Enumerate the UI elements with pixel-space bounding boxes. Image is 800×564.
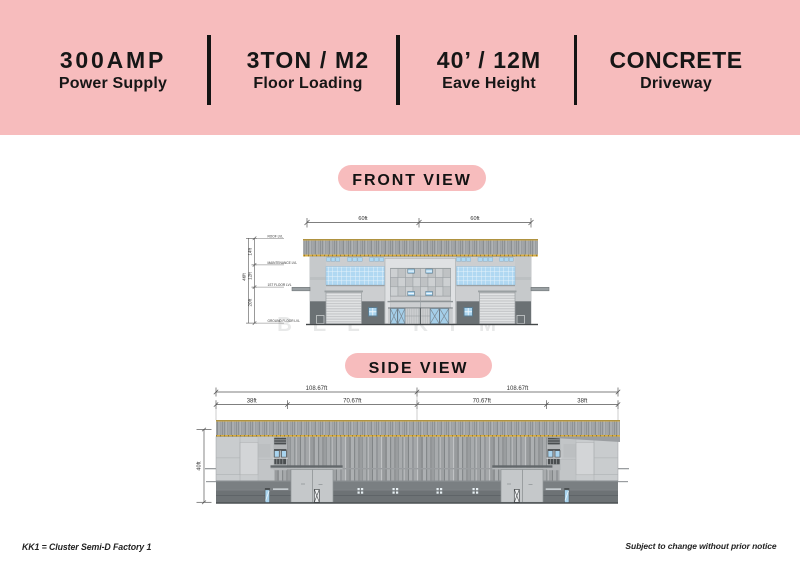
svg-text:46ft: 46ft xyxy=(241,272,246,280)
svg-text:38ft: 38ft xyxy=(247,398,257,404)
svg-text:60ft: 60ft xyxy=(358,216,368,222)
svg-text:108.67ft: 108.67ft xyxy=(306,386,328,392)
svg-text:60ft: 60ft xyxy=(470,216,480,222)
svg-text:B: B xyxy=(277,313,292,336)
svg-text:70.67ft: 70.67ft xyxy=(473,398,492,404)
svg-text:20ft: 20ft xyxy=(248,298,253,306)
svg-text:14ft: 14ft xyxy=(248,247,253,255)
svg-text:38ft: 38ft xyxy=(577,398,587,404)
svg-text:12ft: 12ft xyxy=(248,271,253,279)
svg-text:ROOF LVL: ROOF LVL xyxy=(268,234,284,238)
svg-text:40ft: 40ft xyxy=(197,461,203,471)
svg-text:GROUND FLOOR LVL: GROUND FLOOR LVL xyxy=(268,319,301,323)
svg-text:70.67ft: 70.67ft xyxy=(343,398,362,404)
svg-text:108.67ft: 108.67ft xyxy=(507,386,529,392)
svg-text:1ST FLOOR LVL: 1ST FLOOR LVL xyxy=(268,283,292,287)
svg-text:MAINTENANCE LVL: MAINTENANCE LVL xyxy=(268,261,298,265)
